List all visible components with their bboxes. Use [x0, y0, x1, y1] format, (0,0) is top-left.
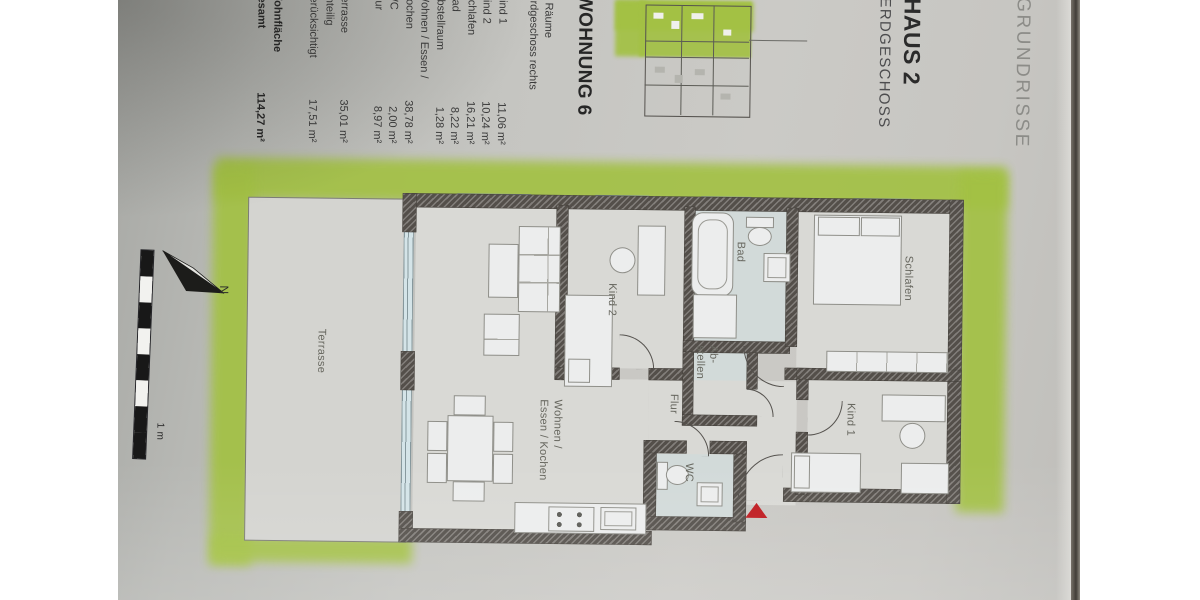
scale-segment [135, 380, 148, 406]
page-edge-highlight [1056, 0, 1072, 600]
window-terrace-1 [402, 232, 413, 352]
mini-furniture [723, 29, 731, 35]
desk-chair [900, 424, 924, 448]
coffee-table [489, 245, 518, 297]
label-abstellraum: Ab- stellen [693, 345, 720, 387]
wall [710, 441, 746, 453]
floorplan-photo-page: Terrasse Kind 2 Bad Ab- stellen Schlafen… [0, 0, 1200, 600]
scale-segment [136, 354, 149, 380]
chair [428, 422, 446, 450]
bathroom-sink [764, 254, 789, 281]
scale-segment [140, 250, 153, 276]
apartment-title: WOHNUNG 6 [572, 0, 596, 146]
toilet-bowl [749, 228, 771, 245]
mini-furniture [655, 67, 665, 73]
pillow [569, 360, 589, 382]
washing-machine [694, 295, 737, 338]
mini-furniture [675, 75, 683, 83]
label-bad: Bad [733, 242, 746, 276]
label-abstell-line2: stellen [694, 345, 706, 379]
armchair [484, 315, 518, 355]
scale-segment [134, 406, 147, 432]
label-terrasse: Terrasse [314, 329, 328, 395]
scale-segment [138, 302, 151, 328]
wall [682, 415, 756, 426]
bathtub [692, 213, 733, 295]
label-flur: Flur [666, 394, 679, 428]
label-kind2: Kind 2 [604, 283, 618, 347]
grundrisse-header: GRUNDRISSE [1010, 0, 1034, 167]
mini-building-outline [644, 5, 751, 118]
scale-segment [137, 328, 150, 354]
apartment-subtitle-rooms: 4 Räume [539, 0, 556, 145]
scale-segment [139, 276, 152, 302]
scale-label: 1 m [153, 423, 166, 449]
pillow [819, 218, 859, 235]
mini-furniture [671, 21, 679, 29]
chair [494, 423, 512, 451]
desk [638, 226, 665, 294]
desk [883, 395, 945, 421]
haus-title: HAUS 2 [897, 0, 926, 178]
brochure-page: Terrasse Kind 2 Bad Ab- stellen Schlafen… [118, 0, 1079, 600]
sofa [519, 227, 560, 311]
bathtub-inner [697, 219, 728, 289]
mini-furniture [691, 13, 703, 19]
desk-chair [610, 248, 634, 272]
mini-furniture [653, 13, 663, 19]
wardrobe [827, 352, 947, 372]
mini-furniture [720, 93, 730, 99]
scale-segment [133, 432, 146, 458]
wall [401, 352, 414, 390]
wall [649, 369, 683, 380]
label-schlafen: Schlafen [901, 256, 915, 314]
photo-vignette [118, 0, 538, 220]
scale-bar [133, 250, 153, 458]
wall [797, 379, 808, 399]
haus-header-block: HAUS 2 ERDGESCHOSS [875, 0, 926, 178]
chair [455, 396, 485, 414]
page-edge-shadow [1071, 0, 1080, 600]
mini-key-plan [610, 0, 812, 130]
photo-vignette [118, 460, 1079, 600]
mini-furniture [695, 69, 705, 75]
geschoss-title: ERDGESCHOSS [875, 0, 894, 178]
mini-leader-line [749, 40, 807, 42]
label-kind1: Kind 1 [843, 403, 857, 447]
pillow [862, 218, 899, 235]
north-label: N [217, 285, 230, 301]
label-abstell-line1: Ab- [707, 345, 719, 363]
toilet-tank [747, 218, 773, 227]
label-wohnen-line1: Wohnen / [551, 399, 564, 448]
